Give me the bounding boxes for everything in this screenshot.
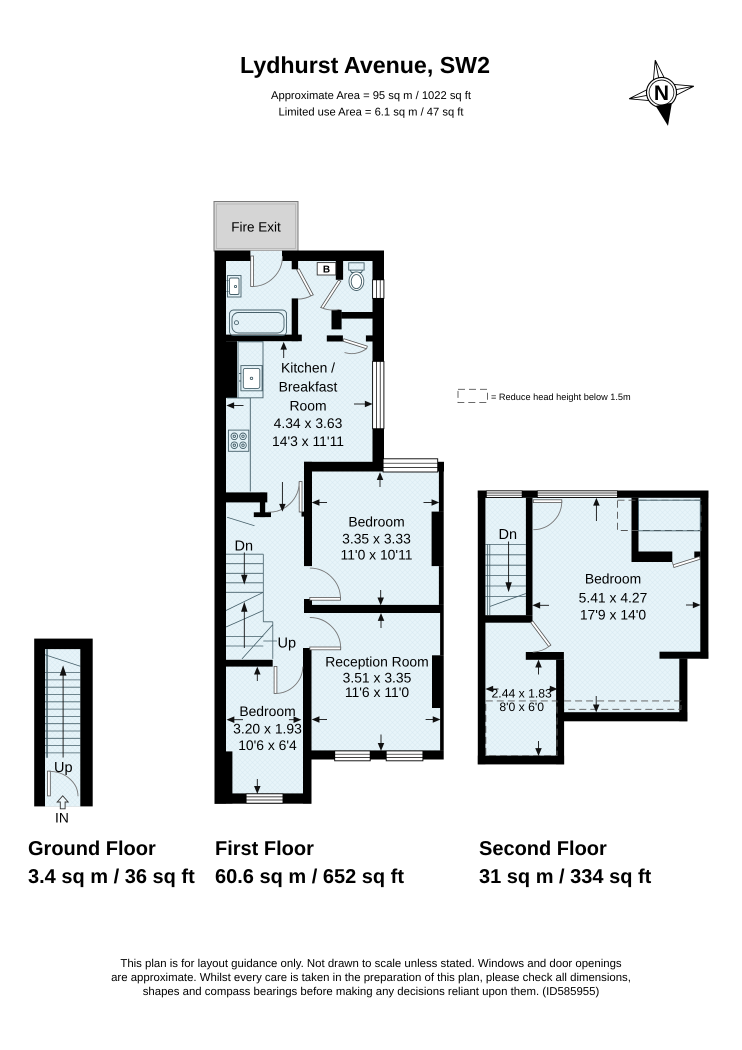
svg-text:4.34 x 3.63: 4.34 x 3.63 [274,415,343,431]
svg-text:8'0 x 6'0: 8'0 x 6'0 [499,700,544,714]
svg-text:Approximate Area = 95 sq m / 1: Approximate Area = 95 sq m / 1022 sq ft [271,90,472,102]
svg-text:3.35 x 3.33: 3.35 x 3.33 [342,531,411,547]
svg-text:Kitchen /: Kitchen / [281,360,335,376]
svg-text:2.44 x 1.83: 2.44 x 1.83 [492,686,553,700]
svg-text:Limited use Area = 6.1 sq m /: Limited use Area = 6.1 sq m / 47 sq ft [278,107,464,119]
svg-text:11'6 x 11'0: 11'6 x 11'0 [345,684,410,700]
svg-text:Fire Exit: Fire Exit [231,220,281,235]
svg-text:N: N [654,82,669,105]
svg-text:Bedroom: Bedroom [348,514,404,530]
svg-text:B: B [323,265,330,276]
svg-text:Second Floor: Second Floor [479,838,607,860]
svg-text:Lydhurst Avenue, SW2: Lydhurst Avenue, SW2 [240,52,490,78]
svg-text:Room: Room [289,398,326,414]
svg-text:17'9 x 14'0: 17'9 x 14'0 [580,607,647,623]
svg-text:IN: IN [55,811,69,826]
svg-text:Dn: Dn [499,527,518,543]
svg-text:14'3 x 11'11: 14'3 x 11'11 [272,433,344,449]
svg-text:3.20 x 1.93: 3.20 x 1.93 [233,721,302,737]
svg-text:Bedroom: Bedroom [239,703,295,719]
svg-text:10'6 x 6'4: 10'6 x 6'4 [238,737,297,753]
svg-text:Bedroom: Bedroom [585,571,641,587]
svg-text:shapes and compass bearings be: shapes and compass bearings before makin… [143,986,600,998]
svg-text:3.51 x 3.35: 3.51 x 3.35 [343,669,412,685]
svg-text:First Floor: First Floor [215,838,314,860]
svg-text:Dn: Dn [235,539,254,555]
svg-text:31 sq m / 334 sq ft: 31 sq m / 334 sq ft [479,866,652,888]
svg-text:are approximate. Whilst every: are approximate. Whilst every care is ta… [111,972,631,984]
svg-text:Up: Up [54,760,73,776]
svg-text:11'0 x 10'11: 11'0 x 10'11 [341,547,413,563]
svg-text:Breakfast: Breakfast [279,379,338,395]
svg-text:5.41 x 4.27: 5.41 x 4.27 [579,590,648,606]
svg-text:Ground Floor: Ground Floor [28,838,156,860]
svg-text:3.4 sq m / 36 sq ft: 3.4 sq m / 36 sq ft [28,866,195,888]
svg-text:Up: Up [278,636,297,652]
svg-text:This plan is for layout guidan: This plan is for layout guidance only. N… [120,958,622,970]
svg-text:Reception Room: Reception Room [325,654,428,670]
svg-text:= Reduce head height below 1.5: = Reduce head height below 1.5m [491,392,631,402]
svg-text:60.6 sq m / 652 sq ft: 60.6 sq m / 652 sq ft [215,866,404,888]
